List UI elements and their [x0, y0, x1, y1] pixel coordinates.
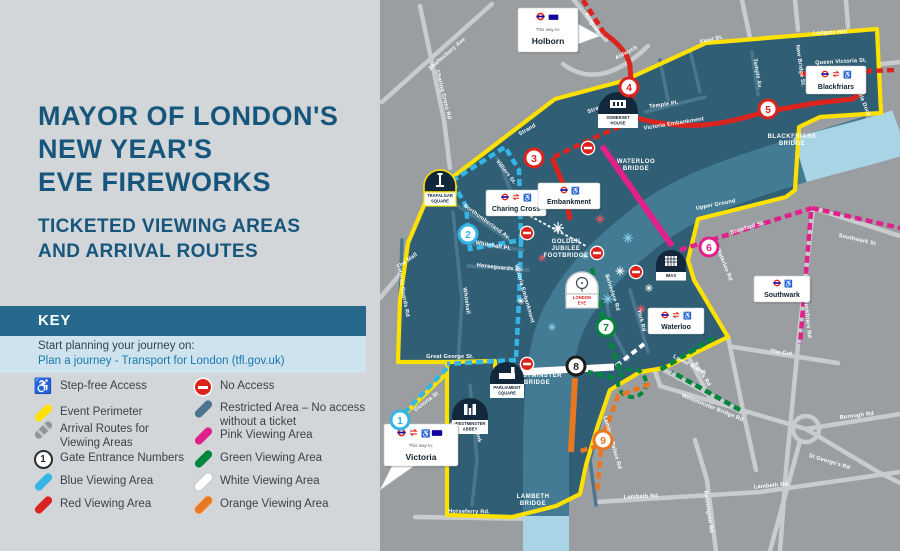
landmark-label: EYE — [578, 301, 587, 306]
callout-destination: Holborn — [532, 36, 565, 46]
landmark-trafalgar-square: TRAFALGARSQUARE — [424, 170, 456, 206]
legend-item: White Viewing Area — [186, 473, 320, 491]
no-access-icon — [195, 379, 211, 395]
legend-label: Orange Viewing Area — [220, 496, 328, 511]
bridge-label: BRIDGE — [520, 501, 546, 507]
legend-label: Step-free Access — [60, 378, 147, 393]
landmark-label: SQUARE — [431, 199, 449, 204]
station-embankment: ♿ Embankment — [538, 183, 602, 211]
callout-prefix: This way to: — [536, 27, 561, 32]
legend-label: Pink Viewing Area — [220, 427, 312, 442]
gate-number: 3 — [531, 153, 537, 165]
pill-graydash-icon — [33, 420, 54, 441]
gate-9-marker: 9 — [594, 431, 612, 449]
landmark-label: IMAX — [666, 273, 677, 278]
legend-item: Event Perimeter — [26, 404, 142, 422]
legend-item: Pink Viewing Area — [186, 427, 312, 445]
pill-blue-icon — [33, 472, 54, 493]
gate-number: 9 — [600, 435, 606, 447]
step-free-icon: ♿ — [784, 279, 793, 288]
legend-item: Restricted Area – No access without a ti… — [186, 400, 365, 429]
landmark-label: TRAFALGAR — [427, 193, 453, 198]
gate-number: 5 — [765, 104, 771, 116]
gate-3-marker: 3 — [525, 149, 543, 167]
legend-item: Green Viewing Area — [186, 450, 322, 468]
no-access-marker — [520, 357, 533, 370]
landmark-label: HOUSE — [611, 121, 626, 126]
bridge-label: BRIDGE — [524, 380, 550, 386]
bridge-label: BLACKFRIARS — [768, 134, 817, 140]
rail-line-logo-icon — [548, 14, 558, 20]
gate-2-marker: 2 — [459, 225, 477, 243]
station-label: Waterloo — [661, 324, 691, 331]
no-access-marker — [581, 141, 594, 154]
legend-item: Orange Viewing Area — [186, 496, 328, 514]
no-access-marker — [629, 265, 642, 278]
wheelchair-icon: ♿ — [34, 379, 53, 395]
street-label: Great George St. — [426, 354, 474, 360]
event-map: Shaftesbury AveCharing Cross RdThe MallS… — [380, 0, 900, 551]
pill-steel-icon — [193, 399, 214, 420]
info-panel: MAYOR OF LONDON'S NEW YEAR'S EVE FIREWOR… — [0, 0, 380, 551]
gate-number: 2 — [465, 229, 471, 241]
bridge-label: FOOTBRIDGE — [544, 253, 589, 259]
gate-number: 7 — [603, 322, 609, 334]
legend-item: Red Viewing Area — [26, 496, 151, 514]
station-waterloo: ♿ Waterloo — [648, 308, 706, 336]
pill-white-icon — [193, 472, 214, 493]
gate-5-marker: 5 — [759, 100, 777, 118]
page-title: MAYOR OF LONDON'S NEW YEAR'S EVE FIREWOR… — [38, 100, 338, 199]
gate-number: 6 — [706, 242, 712, 254]
legend-label: Event Perimeter — [60, 404, 142, 419]
legend-item: No Access — [186, 378, 274, 396]
bridge-label: BRIDGE — [623, 166, 649, 172]
plan-journey-link[interactable]: Plan a journey - Transport for London (t… — [38, 355, 285, 367]
bridge-label: WATERLOO — [617, 159, 655, 165]
street-label: Lambeth Rd — [624, 493, 659, 500]
step-free-icon: ♿ — [843, 70, 852, 79]
gate-number-icon: 1 — [34, 450, 53, 469]
legend-label: Restricted Area – No access without a ti… — [220, 400, 365, 429]
station-label: Blackfriars — [818, 84, 854, 91]
street-label: Horseferry Rd. — [448, 509, 490, 516]
pill-orange-icon — [193, 495, 214, 516]
gate-6-marker: 6 — [700, 238, 718, 256]
landmark-london-eye: LONDONEYE — [566, 272, 598, 308]
pill-red-icon — [33, 495, 54, 516]
station-label: Embankment — [547, 199, 592, 206]
gate-1-marker: 1 — [391, 411, 409, 429]
station-label: Southwark — [764, 292, 800, 299]
bridge-label: GOLDEN — [552, 239, 581, 245]
station-blackfriars: ♿ Blackfriars — [806, 66, 868, 96]
legend-label: Red Viewing Area — [60, 496, 151, 511]
bridge-label: LAMBETH — [517, 494, 550, 500]
gate-number: 1 — [397, 415, 403, 427]
legend-label: Green Viewing Area — [220, 450, 322, 465]
legend-label: No Access — [220, 378, 274, 393]
landmark-label: WESTMINSTER — [455, 421, 486, 426]
landmark-label: PARLIAMENT — [493, 385, 521, 390]
rail-line-logo-icon — [432, 430, 443, 436]
landmark-label: ABBEY — [463, 427, 478, 432]
legend-label: White Viewing Area — [220, 473, 320, 488]
gate-number: 8 — [573, 361, 579, 373]
legend-item: 1Gate Entrance Numbers — [26, 450, 184, 468]
station-label: Charing Cross — [492, 206, 540, 213]
landmark-imax: IMAX — [656, 250, 686, 281]
gate-8-marker: 8 — [567, 357, 585, 375]
gate-number: 4 — [626, 82, 632, 94]
legend-label: Blue Viewing Area — [60, 473, 153, 488]
landmark-label: SQUARE — [498, 391, 516, 396]
no-access-marker — [590, 246, 603, 259]
legend-item: ♿Step-free Access — [26, 378, 147, 396]
journey-planner-strip: Start planning your journey on: Plan a j… — [0, 336, 366, 373]
somerset-house-icon — [610, 100, 626, 108]
landmark-parliament-square: PARLIAMENTSQUARE — [490, 362, 524, 398]
step-free-icon: ♿ — [421, 429, 430, 438]
gate-7-marker: 7 — [597, 318, 615, 336]
step-free-icon: ♿ — [571, 186, 580, 195]
callout-destination: Victoria — [405, 452, 436, 462]
legend-item: Arrival Routes for Viewing Areas — [26, 421, 149, 450]
landmark-label: LONDON — [573, 295, 591, 300]
callout-prefix: This way to: — [409, 443, 434, 448]
step-free-icon: ♿ — [523, 193, 532, 202]
plan-journey-label: Start planning your journey on: — [38, 340, 195, 352]
no-access-marker — [520, 226, 533, 239]
step-free-icon: ♿ — [683, 311, 692, 320]
pill-green-icon — [193, 449, 214, 470]
gate-4-marker: 4 — [620, 78, 638, 96]
key-header: KEY — [0, 306, 366, 336]
legend-label: Arrival Routes for Viewing Areas — [60, 421, 149, 450]
station-southwark: ♿ Southwark — [754, 276, 812, 304]
pill-pink-icon — [193, 426, 214, 447]
legend-label: Gate Entrance Numbers — [60, 450, 184, 465]
street-label: Ludgate Hill — [813, 29, 848, 36]
page-subtitle: TICKETED VIEWING AREAS AND ARRIVAL ROUTE… — [38, 214, 301, 264]
legend-item: Blue Viewing Area — [26, 473, 153, 491]
landmark-label: SOMERSET — [606, 115, 630, 120]
screenshot-root: MAYOR OF LONDON'S NEW YEAR'S EVE FIREWOR… — [0, 0, 900, 551]
bridge-label: BRIDGE — [779, 141, 805, 147]
bridge-label: JUBILEE — [552, 246, 581, 252]
imax-icon — [665, 256, 677, 266]
